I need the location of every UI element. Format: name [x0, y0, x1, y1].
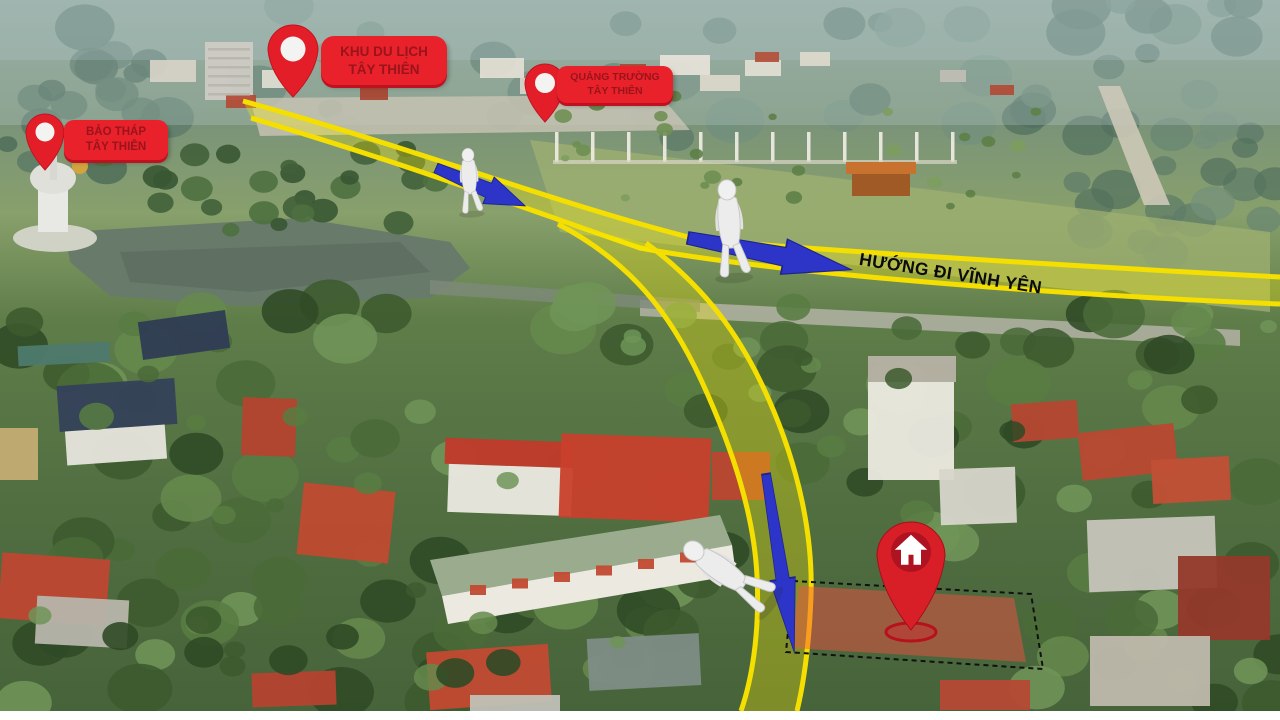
pin-label-line: KHU DU LỊCH: [325, 43, 443, 61]
pin-label-khu-du-lich: KHU DU LỊCH TÂY THIÊN: [321, 36, 447, 85]
pin-label-line: BẢO THÁP: [68, 125, 164, 140]
pin-label-bao-thap: BẢO THÁP TÂY THIÊN: [64, 120, 168, 160]
pin-label-line: QUẢNG TRƯỜNG: [561, 71, 669, 85]
pin-bao-thap-icon: [26, 114, 64, 170]
aerial-listing-image: BẢO THÁP TÂY THIÊN KHU DU LỊCH TÂY THIÊN…: [0, 0, 1280, 720]
pin-label-quang-truong: QUẢNG TRƯỜNG TÂY THIÊN: [557, 66, 673, 103]
road-to-vinh-yen-band: [243, 101, 1280, 304]
bottom-white-strip: [0, 711, 1280, 720]
pin-label-line: TÂY THIÊN: [325, 61, 443, 79]
pin-label-line: TÂY THIÊN: [561, 85, 669, 99]
pin-label-line: TÂY THIÊN: [68, 140, 164, 155]
pin-khu-du-lich-icon: [268, 25, 318, 97]
map-annotations: [0, 0, 1280, 711]
figure-icon: [708, 178, 753, 284]
road-to-property-band: [558, 224, 811, 711]
